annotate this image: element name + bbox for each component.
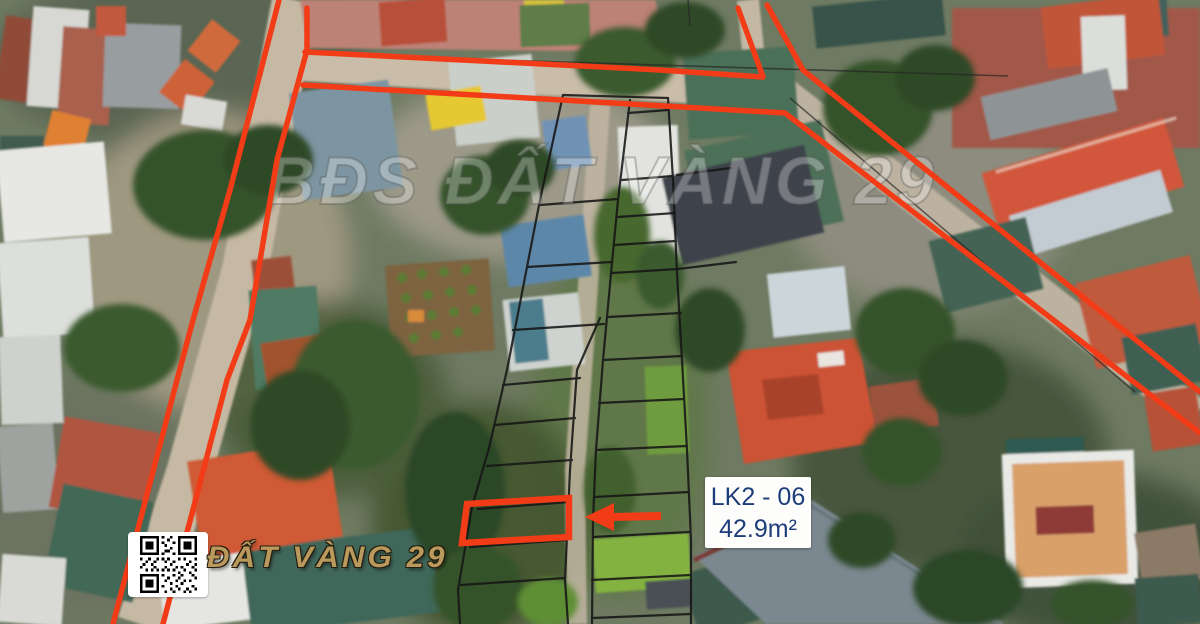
red-road-line-diagonal-upper [767,5,1200,392]
plot-label-box: LK2 - 06 42.9m² [705,477,811,548]
aerial-photo-scene: BĐS ĐẤT VÀNG 29 LK2 - 06 42.9m² [0,0,1200,624]
red-road-line-diagonal-lower [303,85,1200,433]
annotation-layer [0,0,1200,624]
plot-label-code: LK2 - 06 [711,481,806,513]
plot-label-area: 42.9m² [719,513,797,545]
highlight-plot-outline [462,498,569,543]
qr-code [128,532,208,597]
brand-text: ĐẤT VÀNG 29 [207,541,448,575]
qr-pattern [140,536,197,593]
red-road-line-top [305,8,763,77]
direction-arrow [585,503,661,531]
